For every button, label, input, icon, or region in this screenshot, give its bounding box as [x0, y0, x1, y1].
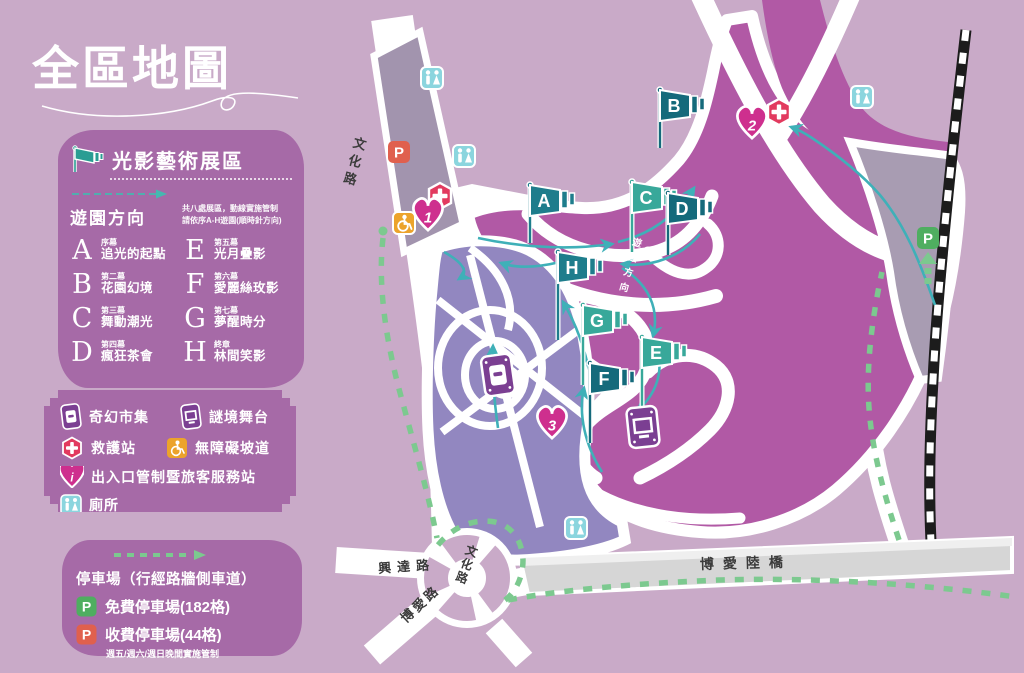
dotted-divider [110, 178, 292, 180]
svg-text:F: F [599, 369, 610, 389]
svg-text:3: 3 [548, 419, 557, 435]
act-name: 夢醒時分 [214, 315, 266, 331]
first-aid-icon [60, 436, 84, 460]
direction-note: 共八處展區，動線實施管制 請依序A-H遊園(順時針方向) [182, 203, 282, 229]
act-letter: A [70, 237, 94, 264]
legend-label: 救護站 [91, 438, 136, 458]
svg-text:1: 1 [424, 211, 432, 227]
exhibit-panel-title: 光影藝術展區 [112, 145, 244, 174]
free-parking-sign: P [917, 227, 939, 249]
legend-label: 出入口管制暨旅客服務站 [91, 467, 256, 487]
legend-panel: 奇幻市集 謎境舞台 [44, 390, 296, 512]
paid-parking-label: 收費停車場(44格) [105, 624, 222, 645]
act-letter: E [183, 237, 207, 264]
legend-label: 奇幻市集 [89, 407, 149, 427]
svg-text:P: P [923, 231, 933, 248]
parking-free-icon: P [76, 596, 97, 617]
act-item-a: A 序幕 追光的起點 [70, 237, 179, 264]
legend-item-stage: 謎境舞台 [180, 403, 269, 430]
wheelchair-icon [393, 212, 415, 234]
exhibit-panel: 光影藝術展區 遊園方向 共八處展區，動線實施管制 請依序A-H遊園(順時針方向)… [58, 130, 304, 388]
wheelchair-icon [166, 437, 188, 459]
act-name: 林間笑影 [214, 349, 266, 365]
act-item-b: B 第二幕 花園幻境 [70, 271, 179, 298]
direction-note-line2: 請依序A-H遊園(順時針方向) [182, 215, 282, 227]
svg-text:B: B [668, 96, 681, 116]
market-icon [60, 403, 82, 430]
svg-text:P: P [394, 145, 404, 162]
act-name: 舞動潮光 [101, 315, 153, 331]
act-letter: G [183, 305, 207, 332]
act-item-g: G 第七幕 夢醒時分 [183, 305, 292, 332]
act-item-f: F 第六幕 愛麗絲玫影 [183, 271, 292, 298]
stage-icon [180, 403, 202, 430]
title-flourish [36, 86, 304, 118]
parking-paid-icon: P [76, 624, 97, 645]
toilet-icon [453, 145, 475, 167]
act-letter: F [183, 271, 207, 298]
direction-label: 遊園方向 [70, 204, 174, 229]
market-icon [480, 353, 515, 397]
svg-text:P: P [82, 627, 91, 643]
act-letter: H [183, 339, 207, 366]
svg-text:C: C [640, 188, 653, 208]
act-name: 瘋狂茶會 [101, 349, 153, 365]
free-parking-label: 免費停車場(182格) [105, 596, 230, 617]
toilet-icon [851, 86, 873, 108]
act-name: 光月疊影 [214, 247, 266, 263]
act-letter: D [70, 339, 94, 366]
festival-area-map: A B C [0, 0, 1024, 673]
legend-label: 無障礙坡道 [195, 438, 270, 458]
legend-item-market: 奇幻市集 [60, 403, 180, 430]
act-name: 花園幻境 [101, 281, 153, 297]
road-label-xingda: 興達路 [377, 554, 435, 577]
parking-title: 停車場（行經路牆側車道） [76, 568, 288, 589]
act-letter: C [70, 305, 94, 332]
toilet-icon [421, 67, 443, 89]
act-name: 愛麗絲玫影 [214, 281, 279, 297]
act-letter: B [70, 271, 94, 298]
act-item-c: C 第三幕 舞動潮光 [70, 305, 179, 332]
paid-parking-row: P 收費停車場(44格) [76, 624, 288, 645]
info-heart-icon: i [60, 466, 84, 488]
legend-item-first-aid: 救護站 [60, 436, 166, 460]
se-road [494, 626, 524, 660]
route-start-dot [379, 227, 388, 236]
toilet-icon [565, 517, 587, 539]
first-aid-icon [768, 99, 790, 125]
stage-icon [626, 406, 660, 449]
free-parking-row: P 免費停車場(182格) [76, 596, 288, 617]
act-item-d: D 第四幕 瘋狂茶會 [70, 339, 179, 366]
direction-note-line1: 共八處展區，動線實施管制 [182, 203, 282, 215]
flag-icon [70, 144, 104, 174]
svg-text:H: H [566, 258, 579, 278]
svg-text:D: D [676, 199, 689, 219]
svg-text:2: 2 [747, 119, 757, 135]
direction-arrow-icon [70, 188, 170, 199]
parking-route-arrow-icon [112, 549, 208, 561]
act-item-h: H 終章 林間笑影 [183, 339, 292, 366]
svg-text:P: P [82, 599, 91, 615]
act-name: 追光的起點 [101, 247, 166, 263]
act-item-e: E 第五幕 光月疊影 [183, 237, 292, 264]
legend-item-info-station: i 出入口管制暨旅客服務站 [60, 466, 256, 488]
paid-parking-sign: P [388, 141, 410, 163]
svg-text:E: E [650, 343, 662, 363]
legend-item-wheelchair: 無障礙坡道 [166, 437, 270, 459]
svg-text:A: A [538, 191, 551, 211]
parking-note: 週五/週六/週日晚間實施管制 [106, 647, 288, 660]
svg-text:G: G [590, 311, 604, 331]
bridge-label: 博愛陸橋 [700, 554, 792, 572]
parking-panel: 停車場（行經路牆側車道） P 免費停車場(182格) P 收費停車場(44格) … [62, 540, 302, 656]
legend-label: 謎境舞台 [209, 407, 269, 427]
acts-list: A 序幕 追光的起點 E 第五幕 光月疊影 B 第二幕 花園幻境 F 第六幕 愛… [70, 237, 292, 366]
